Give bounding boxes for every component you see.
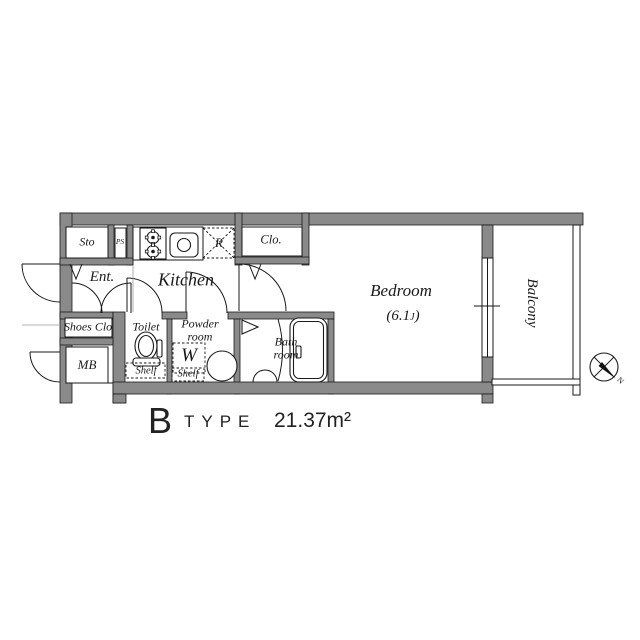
room-label-toilet: Toilet [133,321,160,334]
room-label-shoes-clo: Shoes Clo [64,321,112,334]
room-label-ent: Ent. [90,270,115,286]
meter-box-door-icon [30,352,60,382]
room-label-kitchen: Kitchen [158,271,214,290]
sink-icon [170,233,198,257]
toilet-door-icon [127,278,162,313]
floor-plan: Sto PS Ent. Shoes Clo MB Kitchen Toilet … [0,0,640,640]
plan-type-letter: B [148,400,172,442]
entrance-door-icon [22,264,60,325]
bath-door-icon [242,320,258,334]
room-label-ps: PS [116,238,124,246]
refrigerator-label: R [215,236,223,250]
room-label-bedroom-size: (6.1J) [386,309,419,325]
compass-icon [590,353,618,381]
hall-door-icon [239,264,286,311]
window-icon [474,258,500,357]
washbasin-icon [207,351,237,381]
room-label-powder-room: Powder room [174,317,226,342]
toilet-shelf-label: Shelf [136,365,157,376]
room-label-balcony: Balcony [523,278,539,327]
washer-label: W [181,346,197,366]
room-label-sto: Sto [79,236,94,249]
room-label-bath-room: Bath room [263,335,309,360]
toilet-icon [133,332,162,366]
plan-type-word: TYPE [184,412,256,432]
room-label-mb: MB [78,358,97,372]
shoes-closet-doors-icon [72,283,131,313]
powder-shelf-label: Shelf [178,368,199,379]
room-label-clo: Clo. [260,233,281,246]
room-label-bedroom: Bedroom [370,282,432,300]
plan-area: 21.37m² [274,409,351,433]
